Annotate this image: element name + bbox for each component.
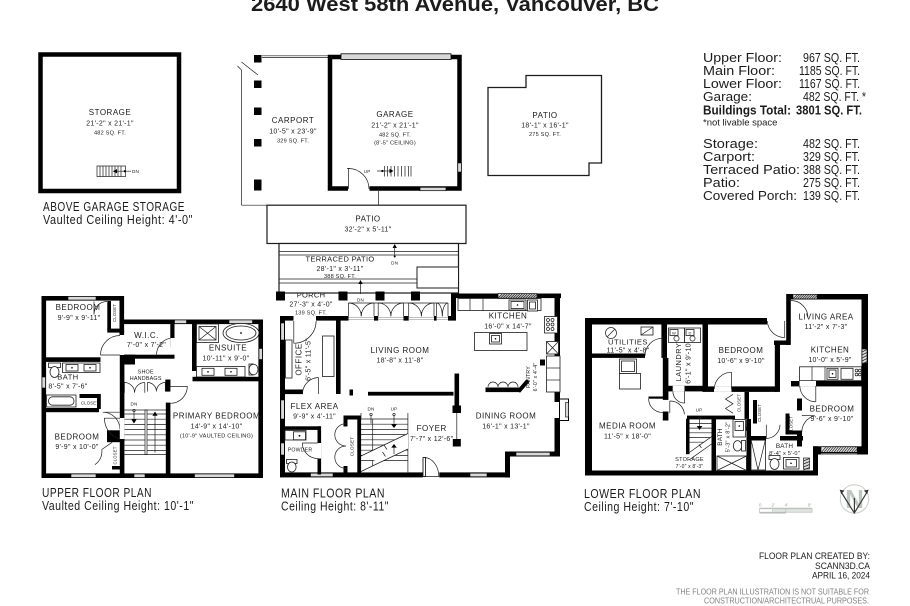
svg-text:DN: DN	[357, 298, 364, 303]
svg-text:MEDIA ROOM: MEDIA ROOM	[599, 422, 656, 431]
svg-text:Patio:: Patio:	[703, 176, 740, 190]
svg-text:CLOSET: CLOSET	[112, 304, 117, 322]
svg-text:UP: UP	[364, 169, 371, 174]
svg-text:HANDBAGS: HANDBAGS	[130, 376, 162, 382]
svg-text:482 SQ. FT.: 482 SQ. FT.	[94, 131, 126, 137]
svg-text:DN: DN	[130, 402, 137, 407]
svg-text:Main Floor:: Main Floor:	[703, 64, 775, 78]
svg-text:KITCHEN: KITCHEN	[489, 312, 528, 321]
svg-text:10'-6" x 9'-10": 10'-6" x 9'-10"	[717, 358, 765, 365]
svg-text:482 SQ. FT.: 482 SQ. FT.	[379, 133, 411, 139]
svg-text:28'-1" x 3'-11": 28'-1" x 3'-11"	[316, 266, 363, 273]
svg-text:1185 SQ. FT.: 1185 SQ. FT.	[799, 64, 860, 78]
svg-text:APRIL 16, 2024: APRIL 16, 2024	[812, 571, 871, 582]
svg-text:388 SQ. FT.: 388 SQ. FT.	[803, 163, 860, 177]
svg-text:18'-1" x 16'-1": 18'-1" x 16'-1"	[521, 123, 569, 130]
svg-text:STORAGE: STORAGE	[89, 108, 131, 117]
svg-text:11'-5" x 4'-8": 11'-5" x 4'-8"	[607, 348, 650, 355]
svg-text:DN: DN	[367, 407, 374, 412]
svg-text:388 SQ. FT.: 388 SQ. FT.	[324, 274, 356, 280]
svg-text:Buildings Total:: Buildings Total:	[703, 104, 791, 118]
svg-text:21'-2" x 21'-1": 21'-2" x 21'-1"	[86, 121, 134, 128]
svg-text:CLOSET: CLOSET	[757, 404, 762, 422]
svg-text:Garage:: Garage:	[703, 90, 752, 104]
svg-text:CLOSET: CLOSET	[737, 394, 742, 412]
svg-text:CLOSET: CLOSET	[350, 437, 355, 457]
svg-text:9'-9" x 10'-0": 9'-9" x 10'-0"	[55, 444, 99, 451]
svg-text:Vaulted Ceiling Height: 10'-1": Vaulted Ceiling Height: 10'-1"	[42, 499, 194, 513]
svg-text:BATH: BATH	[57, 373, 78, 382]
svg-text:PORCH: PORCH	[297, 291, 326, 300]
svg-text:DINING ROOM: DINING ROOM	[476, 412, 537, 421]
svg-text:PANTRY: PANTRY	[526, 366, 532, 388]
svg-text:*not livable space: *not livable space	[703, 118, 777, 129]
svg-text:(10'-9" VAULTED CEILING): (10'-9" VAULTED CEILING)	[180, 434, 253, 440]
svg-text:Covered Porch:: Covered Porch:	[703, 189, 797, 203]
svg-text:BATH: BATH	[776, 443, 794, 450]
svg-text:329 SQ. FT.: 329 SQ. FT.	[803, 150, 860, 164]
svg-text:5'-3" x 8'-2": 5'-3" x 8'-2"	[726, 422, 732, 453]
svg-text:UP: UP	[696, 408, 703, 413]
svg-text:Ceiling Height: 7'-10": Ceiling Height: 7'-10"	[584, 500, 694, 514]
svg-text:PRIMARY BEDROOM: PRIMARY BEDROOM	[173, 412, 260, 421]
svg-text:21'-2" x 21'-1": 21'-2" x 21'-1"	[371, 123, 419, 130]
svg-text:CLOSET: CLOSET	[81, 401, 99, 406]
svg-text:Lower Floor:: Lower Floor:	[703, 77, 782, 91]
svg-text:8': 8'	[808, 503, 812, 508]
svg-text:3801 SQ. FT.: 3801 SQ. FT.	[796, 104, 862, 118]
svg-text:KITCHEN: KITCHEN	[811, 346, 850, 355]
svg-text:FLEX AREA: FLEX AREA	[290, 402, 338, 411]
svg-text:GARAGE: GARAGE	[376, 110, 413, 119]
svg-text:10'-5" x 23'-9": 10'-5" x 23'-9"	[269, 129, 317, 136]
svg-text:2640 West 58th Avenue, Vancouv: 2640 West 58th Avenue, Vancouver, BC	[251, 0, 659, 16]
svg-text:11'-2" x 7'-3": 11'-2" x 7'-3"	[805, 324, 848, 331]
svg-text:275 SQ. FT.: 275 SQ. FT.	[529, 132, 561, 138]
svg-text:CARPORT: CARPORT	[272, 116, 314, 125]
svg-text:(8'-5" CEILING): (8'-5" CEILING)	[374, 141, 416, 147]
svg-text:DN: DN	[391, 261, 398, 266]
svg-text:329 SQ. FT.: 329 SQ. FT.	[277, 139, 309, 145]
svg-text:POWDER: POWDER	[288, 448, 313, 454]
svg-text:967 SQ. FT.: 967 SQ. FT.	[803, 51, 860, 65]
svg-text:16'-0" x 14'-7": 16'-0" x 14'-7"	[484, 324, 532, 331]
svg-text:9'-9" x 9'-11": 9'-9" x 9'-11"	[58, 315, 101, 322]
svg-text:275 SQ. FT.: 275 SQ. FT.	[803, 176, 860, 190]
svg-text:14'-9" x 14'-10": 14'-9" x 14'-10"	[191, 424, 243, 431]
svg-text:18'-8" x 11'-8": 18'-8" x 11'-8"	[376, 358, 423, 365]
svg-text:SHOE: SHOE	[138, 370, 154, 376]
svg-text:4': 4'	[785, 503, 789, 508]
svg-text:BATH: BATH	[717, 428, 724, 446]
svg-text:Carport:: Carport:	[703, 150, 755, 164]
svg-text:7'-0" x 8'-3": 7'-0" x 8'-3"	[676, 464, 704, 470]
svg-text:6'-1" x 9'-10": 6'-1" x 9'-10"	[686, 340, 693, 384]
svg-text:7'-0" x 7'-2": 7'-0" x 7'-2"	[127, 342, 166, 349]
svg-text:PATIO: PATIO	[532, 111, 557, 120]
svg-text:MAIN FLOOR PLAN: MAIN FLOOR PLAN	[281, 487, 385, 501]
svg-text:TERRACED PATIO: TERRACED PATIO	[306, 255, 375, 264]
svg-text:FOYER: FOYER	[417, 424, 447, 433]
svg-text:CLOSET: CLOSET	[112, 446, 117, 464]
svg-text:W.I.C.: W.I.C.	[134, 331, 159, 340]
svg-text:CONSTRUCTION/ARCHITECTRUAL PUR: CONSTRUCTION/ARCHITECTRUAL PURPOSES.	[704, 596, 869, 606]
svg-text:Vaulted Ceiling Height: 4'-0": Vaulted Ceiling Height: 4'-0"	[43, 213, 193, 227]
svg-text:1167 SQ. FT.: 1167 SQ. FT.	[799, 77, 860, 91]
svg-text:LOWER FLOOR PLAN: LOWER FLOOR PLAN	[584, 487, 701, 501]
svg-text:DN: DN	[132, 169, 139, 174]
svg-text:9'-6" x 9'-10": 9'-6" x 9'-10"	[810, 416, 854, 423]
svg-text:9'-9" x 4'-11": 9'-9" x 4'-11"	[293, 414, 336, 421]
svg-text:W: W	[672, 331, 676, 336]
svg-text:Ceiling Height: 8'-11": Ceiling Height: 8'-11"	[281, 500, 389, 514]
svg-text:UPPER FLOOR PLAN: UPPER FLOOR PLAN	[42, 486, 152, 500]
svg-text:Terraced Patio:: Terraced Patio:	[703, 163, 800, 177]
svg-text:482 SQ. FT. *: 482 SQ. FT. *	[803, 90, 866, 104]
svg-text:BEDROOM: BEDROOM	[810, 405, 855, 414]
svg-text:ABOVE GARAGE STORAGE: ABOVE GARAGE STORAGE	[43, 200, 185, 214]
svg-text:27'-3" x 4'-0": 27'-3" x 4'-0"	[289, 302, 333, 309]
svg-text:11'-5" x 18'-0": 11'-5" x 18'-0"	[604, 434, 651, 441]
svg-text:10'-0" x 5'-9": 10'-0" x 5'-9"	[808, 357, 852, 364]
svg-text:6'-0" x 4'-4": 6'-0" x 4'-4"	[533, 363, 539, 392]
svg-text:LIVING ROOM: LIVING ROOM	[371, 346, 430, 355]
svg-text:UTILITIES: UTILITIES	[608, 338, 648, 347]
svg-text:Upper Floor:: Upper Floor:	[703, 51, 782, 65]
svg-text:8'-5" x 7'-6": 8'-5" x 7'-6"	[48, 384, 87, 391]
svg-text:OFFICE: OFFICE	[295, 343, 304, 375]
svg-text:ENSUITE: ENSUITE	[209, 344, 247, 353]
svg-text:139 SQ. FT.: 139 SQ. FT.	[803, 189, 860, 203]
svg-text:10'-11" x 9'-0": 10'-11" x 9'-0"	[202, 356, 249, 363]
svg-text:UP: UP	[391, 407, 398, 412]
svg-text:D: D	[688, 331, 691, 336]
svg-text:BEDROOM: BEDROOM	[719, 346, 764, 355]
svg-text:LAUNDRY: LAUNDRY	[674, 343, 683, 382]
svg-text:Storage:: Storage:	[703, 137, 758, 151]
svg-text:6'-5" x 11'-5": 6'-5" x 11'-5"	[306, 338, 313, 381]
svg-text:LIVING AREA: LIVING AREA	[798, 313, 853, 322]
svg-text:PATIO: PATIO	[355, 215, 380, 224]
svg-text:BEDROOM: BEDROOM	[55, 433, 100, 442]
svg-text:32'-2" x 5'-11": 32'-2" x 5'-11"	[344, 227, 391, 234]
svg-text:482 SQ. FT.: 482 SQ. FT.	[803, 137, 860, 151]
svg-text:16'-1" x 13'-1": 16'-1" x 13'-1"	[482, 424, 530, 431]
svg-text:2': 2'	[772, 503, 776, 508]
svg-text:7'-7" x 12'-6": 7'-7" x 12'-6"	[410, 436, 454, 443]
